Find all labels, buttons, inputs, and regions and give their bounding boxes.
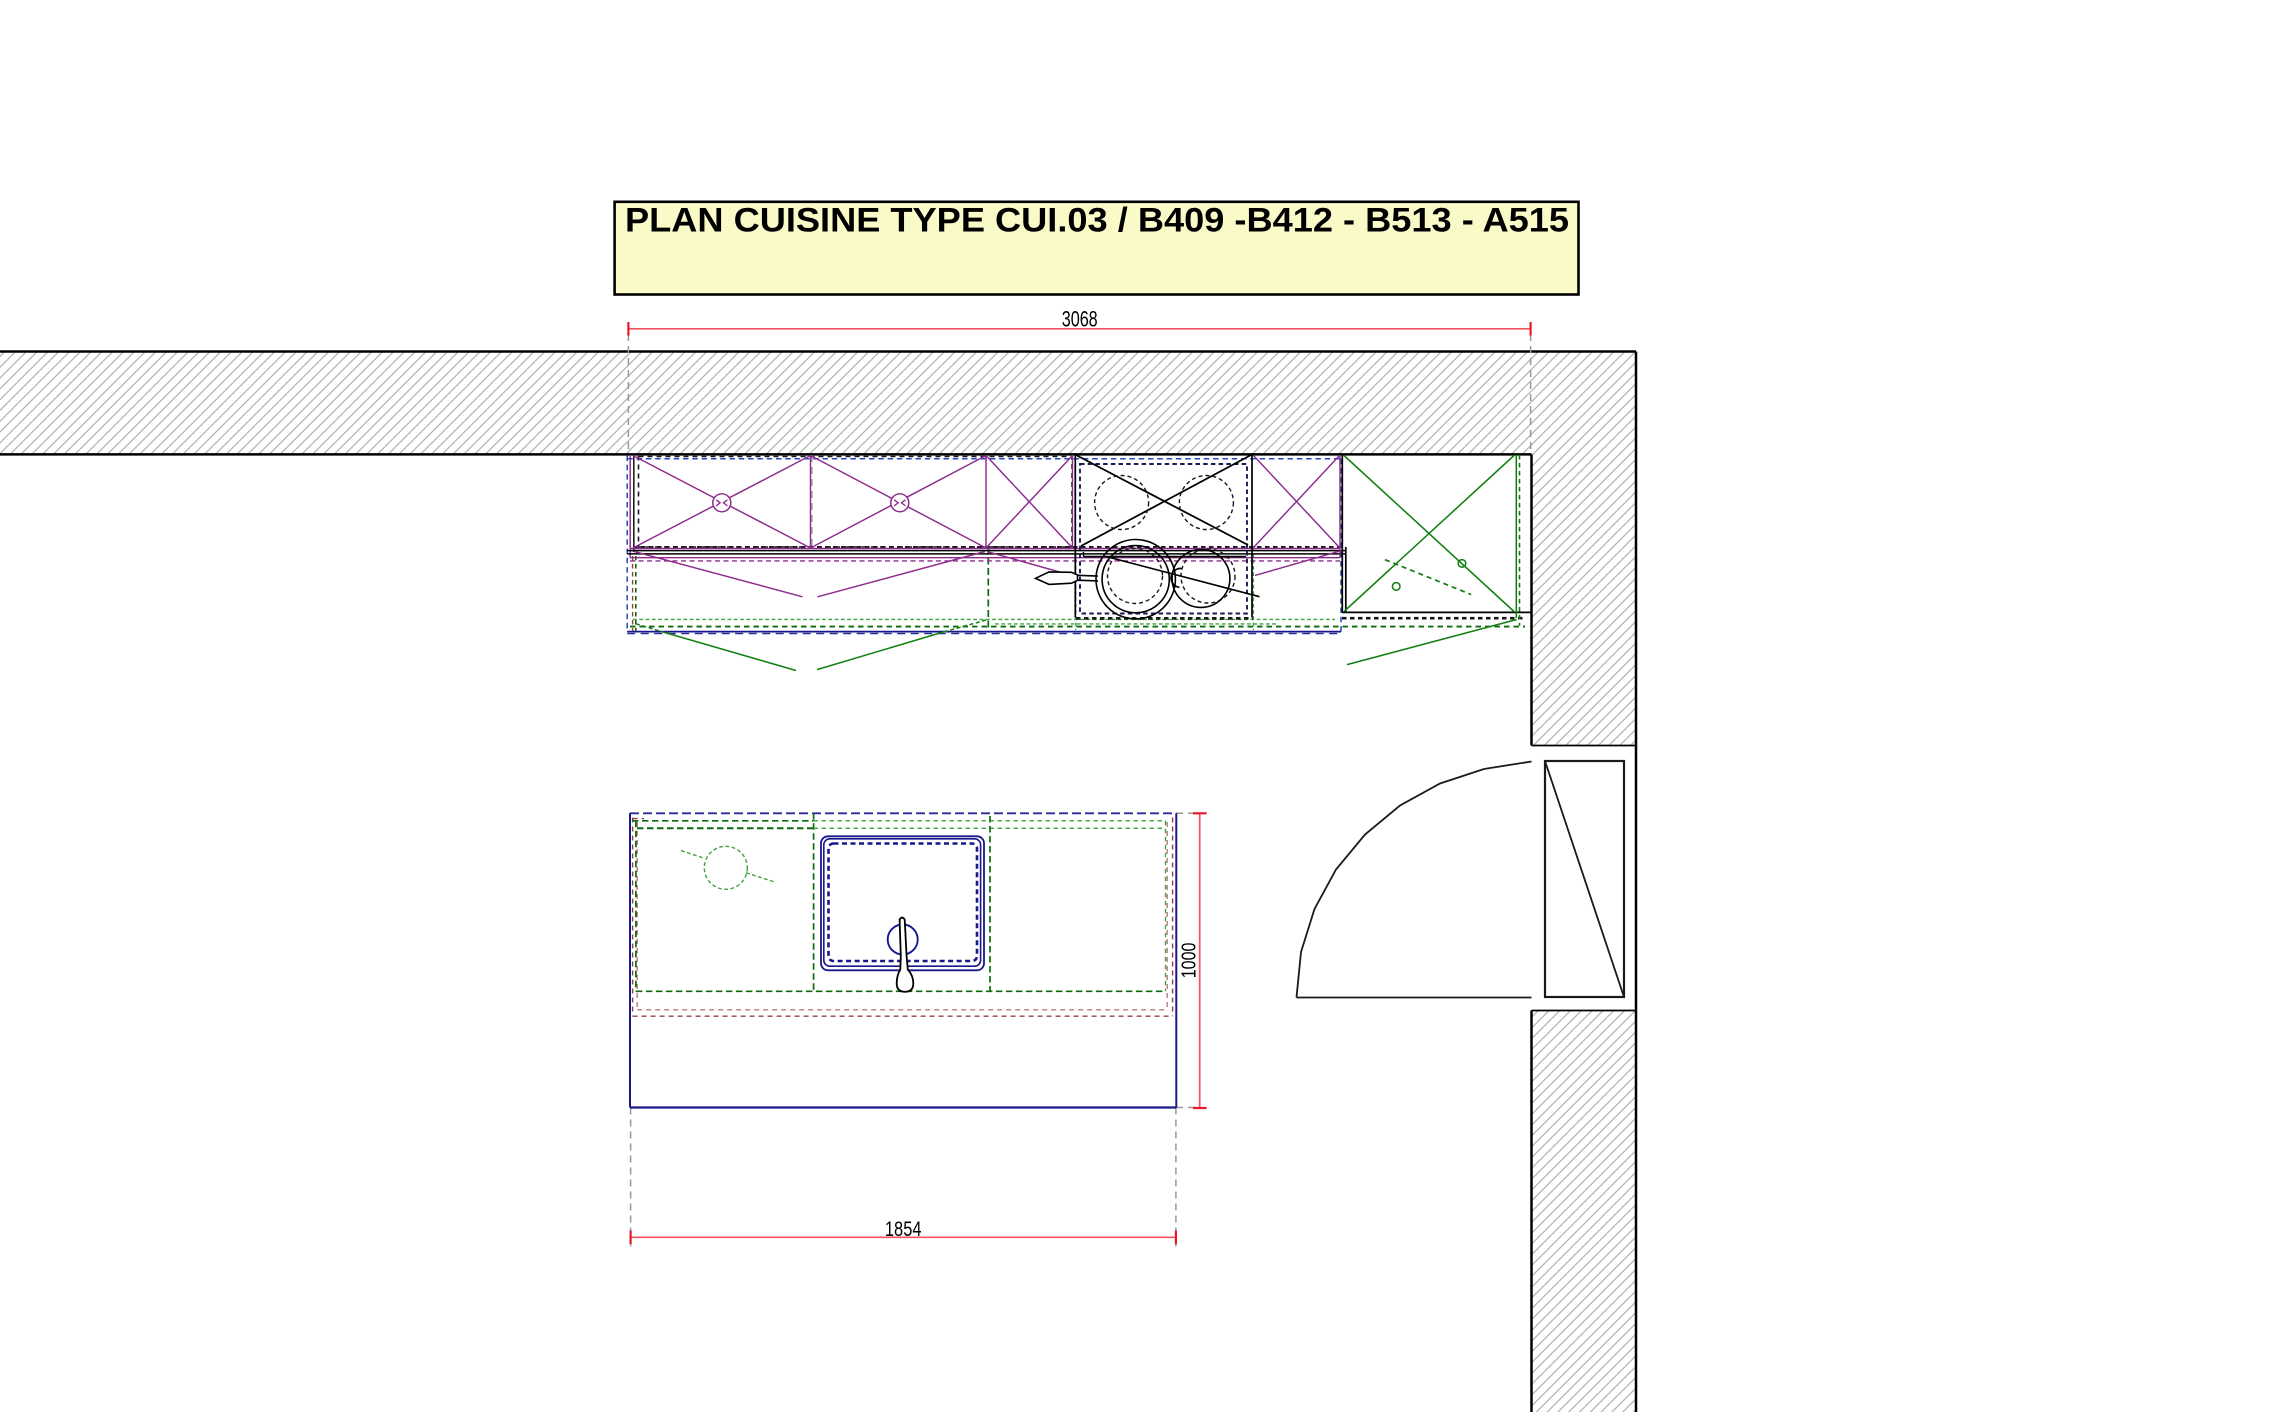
- svg-text:3068: 3068: [1062, 307, 1098, 332]
- svg-text:PLAN CUISINE TYPE CUI.03 / B40: PLAN CUISINE TYPE CUI.03 / B409 -B412 - …: [625, 202, 1569, 240]
- svg-text:1854: 1854: [885, 1218, 922, 1241]
- svg-text:1000: 1000: [1179, 943, 1201, 979]
